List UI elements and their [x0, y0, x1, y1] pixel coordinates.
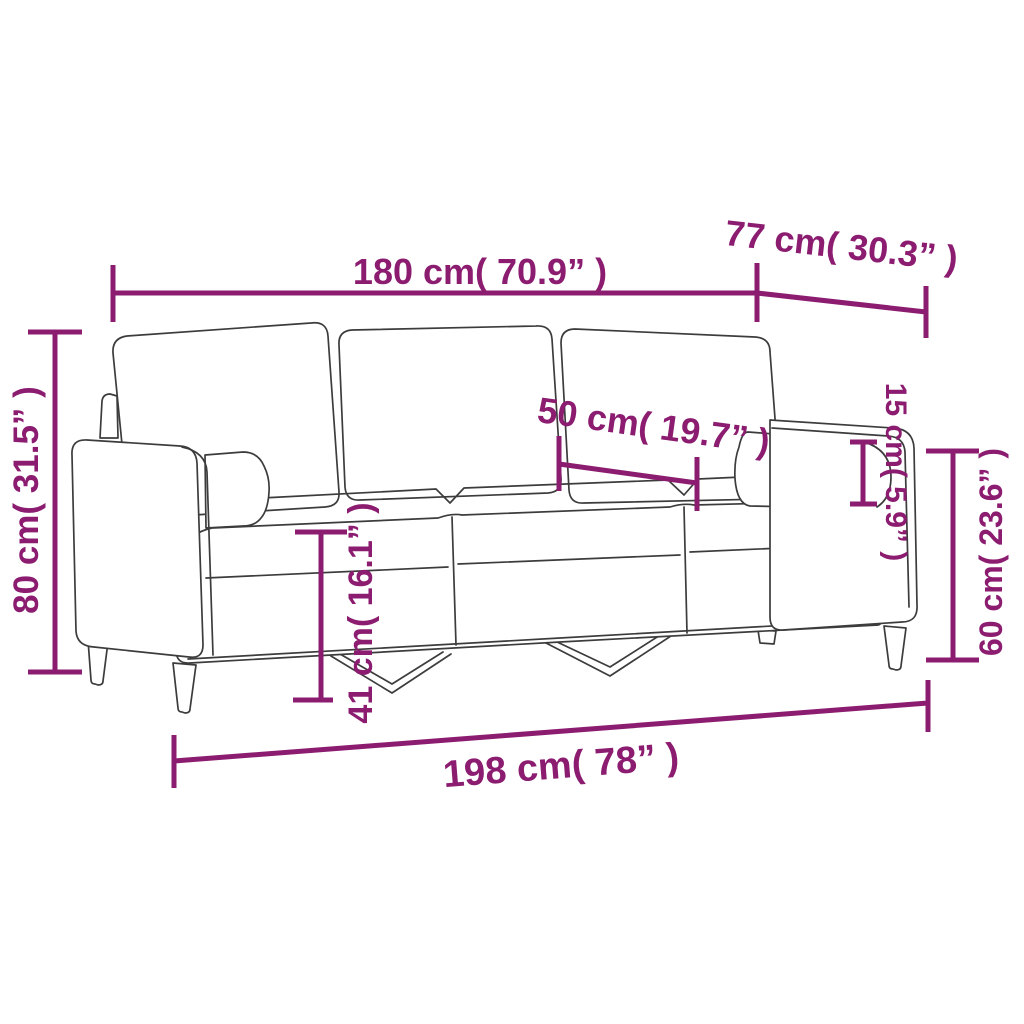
dimension-total-width: 198 cm( 78” ) — [174, 680, 928, 796]
dimension-label-overall-width: 180 cm( 70.9” ) — [353, 251, 607, 292]
armrest-left — [72, 440, 203, 657]
sofa-leg-right — [884, 626, 906, 670]
dimension-overall-height: 80 cm( 31.5” ) — [7, 332, 82, 672]
dimension-label-bolster-diameter: 15 cm( 5.9” ) — [879, 383, 912, 561]
back-cushion-middle — [339, 326, 561, 500]
sofa-back-frame-edge — [100, 394, 118, 438]
dimension-armrest-height: 60 cm( 23.6” ) — [926, 448, 1009, 660]
dimension-overall-width: 180 cm( 70.9” ) — [113, 251, 757, 322]
bolster-pillow-left — [205, 452, 269, 528]
sofa-line-drawing — [72, 323, 917, 713]
dimension-line — [757, 286, 926, 338]
dimension-label-armrest-height: 60 cm( 23.6” ) — [973, 448, 1009, 656]
dimension-label-seat-height: 41 cm( 16.1” ) — [342, 502, 380, 723]
dimension-line — [926, 451, 979, 660]
dimension-diagram: 180 cm( 70.9” ) 77 cm( 30.3” ) 80 cm( 31… — [0, 0, 1024, 1024]
sofa-leg-front-left — [173, 663, 196, 713]
sofa-dimension-svg: 180 cm( 70.9” ) 77 cm( 30.3” ) 80 cm( 31… — [0, 0, 1024, 1024]
dimension-label-overall-height: 80 cm( 31.5” ) — [7, 386, 46, 614]
dimension-label-total-width: 198 cm( 78” ) — [441, 736, 680, 796]
